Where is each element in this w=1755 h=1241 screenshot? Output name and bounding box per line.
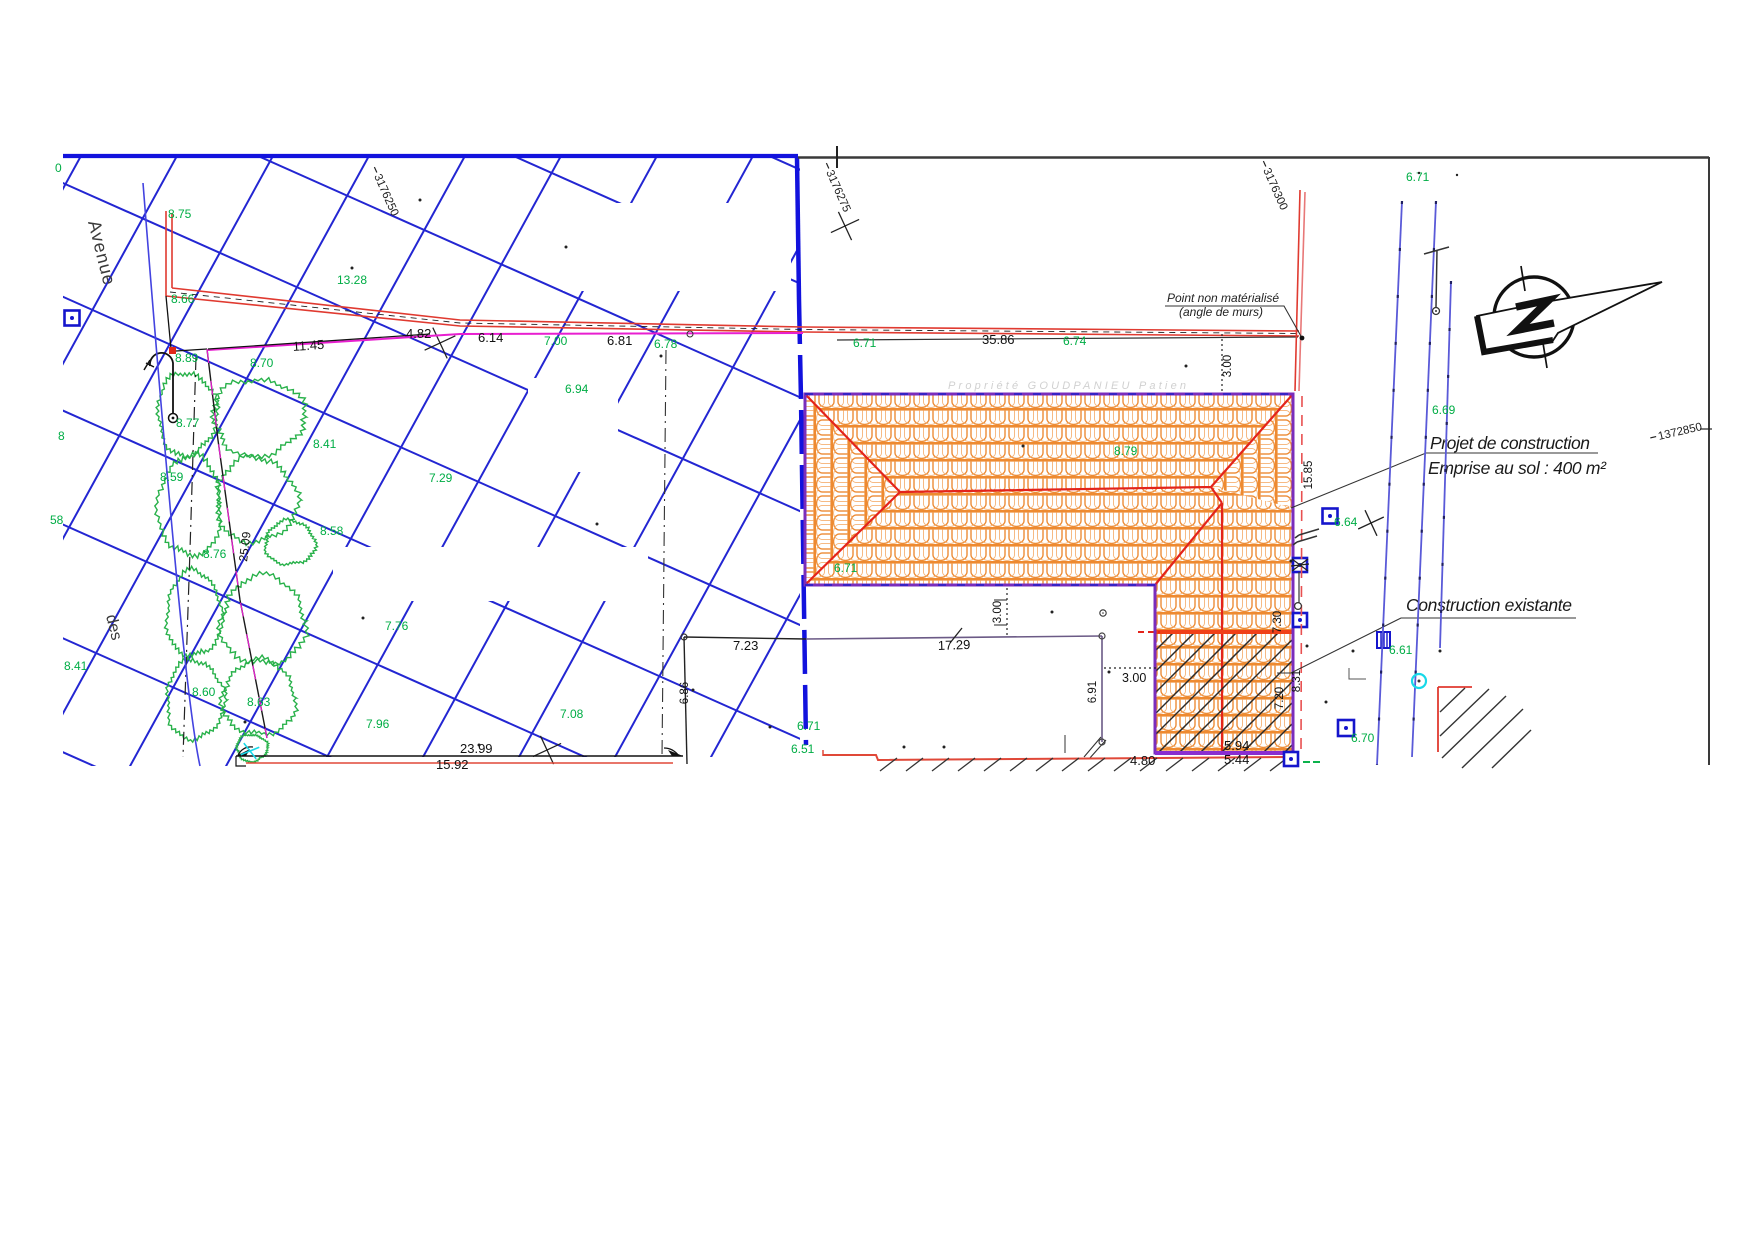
svg-text:0: 0 <box>55 161 62 175</box>
svg-text:6.64: 6.64 <box>1334 515 1358 529</box>
svg-text:8.63: 8.63 <box>247 695 271 709</box>
svg-text:Propriété GOUDPANIEU Patien: Propriété GOUDPANIEU Patien <box>948 380 1186 392</box>
svg-text:23.99: 23.99 <box>460 741 493 756</box>
svg-text:Projet de construction: Projet de construction <box>1430 433 1590 453</box>
svg-text:8.31: 8.31 <box>1291 670 1303 692</box>
svg-text:4.82: 4.82 <box>406 326 431 341</box>
svg-text:8.41: 8.41 <box>64 659 88 673</box>
svg-text:15.85: 15.85 <box>1303 461 1315 490</box>
svg-text:6.71: 6.71 <box>834 561 858 575</box>
svg-text:8.41: 8.41 <box>313 437 337 451</box>
svg-text:5.94: 5.94 <box>1224 738 1249 753</box>
svg-text:7.00: 7.00 <box>544 334 568 348</box>
svg-text:Emprise au sol : 400 m²: Emprise au sol : 400 m² <box>1428 458 1607 478</box>
svg-text:8.77: 8.77 <box>176 416 200 430</box>
svg-text:3.00: 3.00 <box>1122 671 1146 685</box>
svg-text:6.94: 6.94 <box>565 382 589 396</box>
svg-text:6.81: 6.81 <box>607 333 632 348</box>
svg-text:17.29: 17.29 <box>938 637 971 653</box>
svg-text:8.70: 8.70 <box>250 356 274 370</box>
svg-text:8.89: 8.89 <box>175 351 199 365</box>
svg-text:8.75: 8.75 <box>168 207 192 221</box>
svg-text:5.44: 5.44 <box>1224 752 1249 767</box>
svg-text:7.08: 7.08 <box>560 707 584 721</box>
svg-text:6.70: 6.70 <box>1351 731 1375 745</box>
svg-text:6.71: 6.71 <box>797 719 821 733</box>
svg-text:8.58: 8.58 <box>320 524 344 538</box>
svg-text:7.96: 7.96 <box>366 717 390 731</box>
svg-text:8.79: 8.79 <box>1114 444 1138 458</box>
svg-text:35.86: 35.86 <box>982 332 1015 347</box>
svg-text:7.23: 7.23 <box>733 638 758 653</box>
svg-text:13.28: 13.28 <box>337 273 367 287</box>
svg-text:7.20: 7.20 <box>1274 687 1286 709</box>
svg-text:58: 58 <box>50 513 64 527</box>
svg-text:Point non matérialisé: Point non matérialisé <box>1167 291 1279 305</box>
svg-text:Construction existante: Construction existante <box>1406 595 1572 615</box>
svg-text:8.59: 8.59 <box>160 470 184 484</box>
svg-text:3.00: 3.00 <box>1222 355 1234 377</box>
svg-text:8.60: 8.60 <box>192 685 216 699</box>
svg-text:6.51: 6.51 <box>791 742 815 756</box>
svg-text:(angle de murs): (angle de murs) <box>1179 305 1263 319</box>
svg-text:11.45: 11.45 <box>292 337 325 354</box>
svg-text:6.69: 6.69 <box>1432 403 1456 417</box>
svg-text:6.61: 6.61 <box>1389 643 1413 657</box>
svg-text:7.30: 7.30 <box>1272 611 1284 633</box>
svg-text:7.29: 7.29 <box>429 471 453 485</box>
svg-text:6.91: 6.91 <box>1087 681 1099 703</box>
svg-text:6.14: 6.14 <box>478 330 503 345</box>
svg-text:6.86: 6.86 <box>679 682 691 704</box>
svg-text:8: 8 <box>58 429 65 443</box>
svg-text:15.92: 15.92 <box>436 757 469 772</box>
svg-text:6.71: 6.71 <box>853 336 877 350</box>
svg-text:6.74: 6.74 <box>1063 334 1087 348</box>
svg-text:3.00: 3.00 <box>992 601 1004 623</box>
svg-text:6.78: 6.78 <box>654 337 678 351</box>
svg-text:7.76: 7.76 <box>385 619 409 633</box>
svg-text:6.71: 6.71 <box>1406 170 1430 184</box>
svg-text:4.80: 4.80 <box>1130 753 1155 768</box>
svg-text:8.76: 8.76 <box>203 547 227 561</box>
svg-text:8.66: 8.66 <box>171 292 195 306</box>
